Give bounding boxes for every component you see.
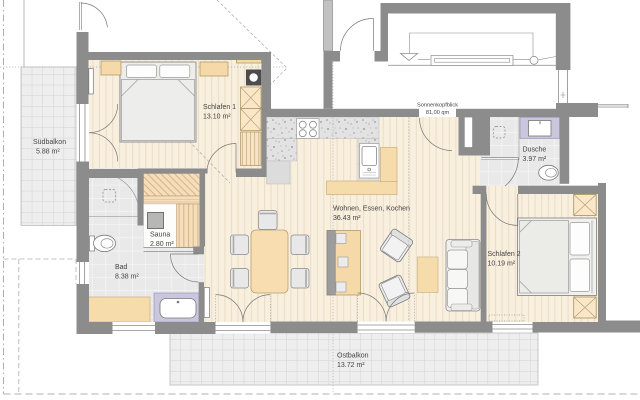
svg-text:Südbalkon: Südbalkon [33, 139, 66, 146]
svg-text:13.72 m²: 13.72 m² [337, 362, 365, 369]
svg-text:Schlafen 2: Schlafen 2 [488, 251, 521, 258]
svg-text:Wohnen, Essen, Kochen: Wohnen, Essen, Kochen [333, 206, 410, 213]
svg-text:Sonnenkopfblick: Sonnenkopfblick [417, 103, 458, 109]
svg-text:5.88 m²: 5.88 m² [36, 149, 60, 156]
svg-text:Schlafen 1: Schlafen 1 [203, 104, 236, 111]
svg-text:Dusche: Dusche [523, 147, 547, 154]
svg-text:81,00 qm: 81,00 qm [426, 110, 450, 116]
svg-text:Ostbalkon: Ostbalkon [337, 353, 369, 360]
svg-text:2.80 m²: 2.80 m² [150, 241, 174, 248]
svg-text:3.97 m²: 3.97 m² [523, 156, 547, 163]
svg-text:Sauna: Sauna [150, 232, 170, 239]
svg-text:8.38 m²: 8.38 m² [115, 274, 139, 281]
svg-text:Bad: Bad [115, 264, 128, 271]
svg-text:10.19 m²: 10.19 m² [488, 261, 516, 268]
svg-text:36.43 m²: 36.43 m² [333, 215, 361, 222]
svg-text:13.10 m²: 13.10 m² [203, 114, 231, 121]
